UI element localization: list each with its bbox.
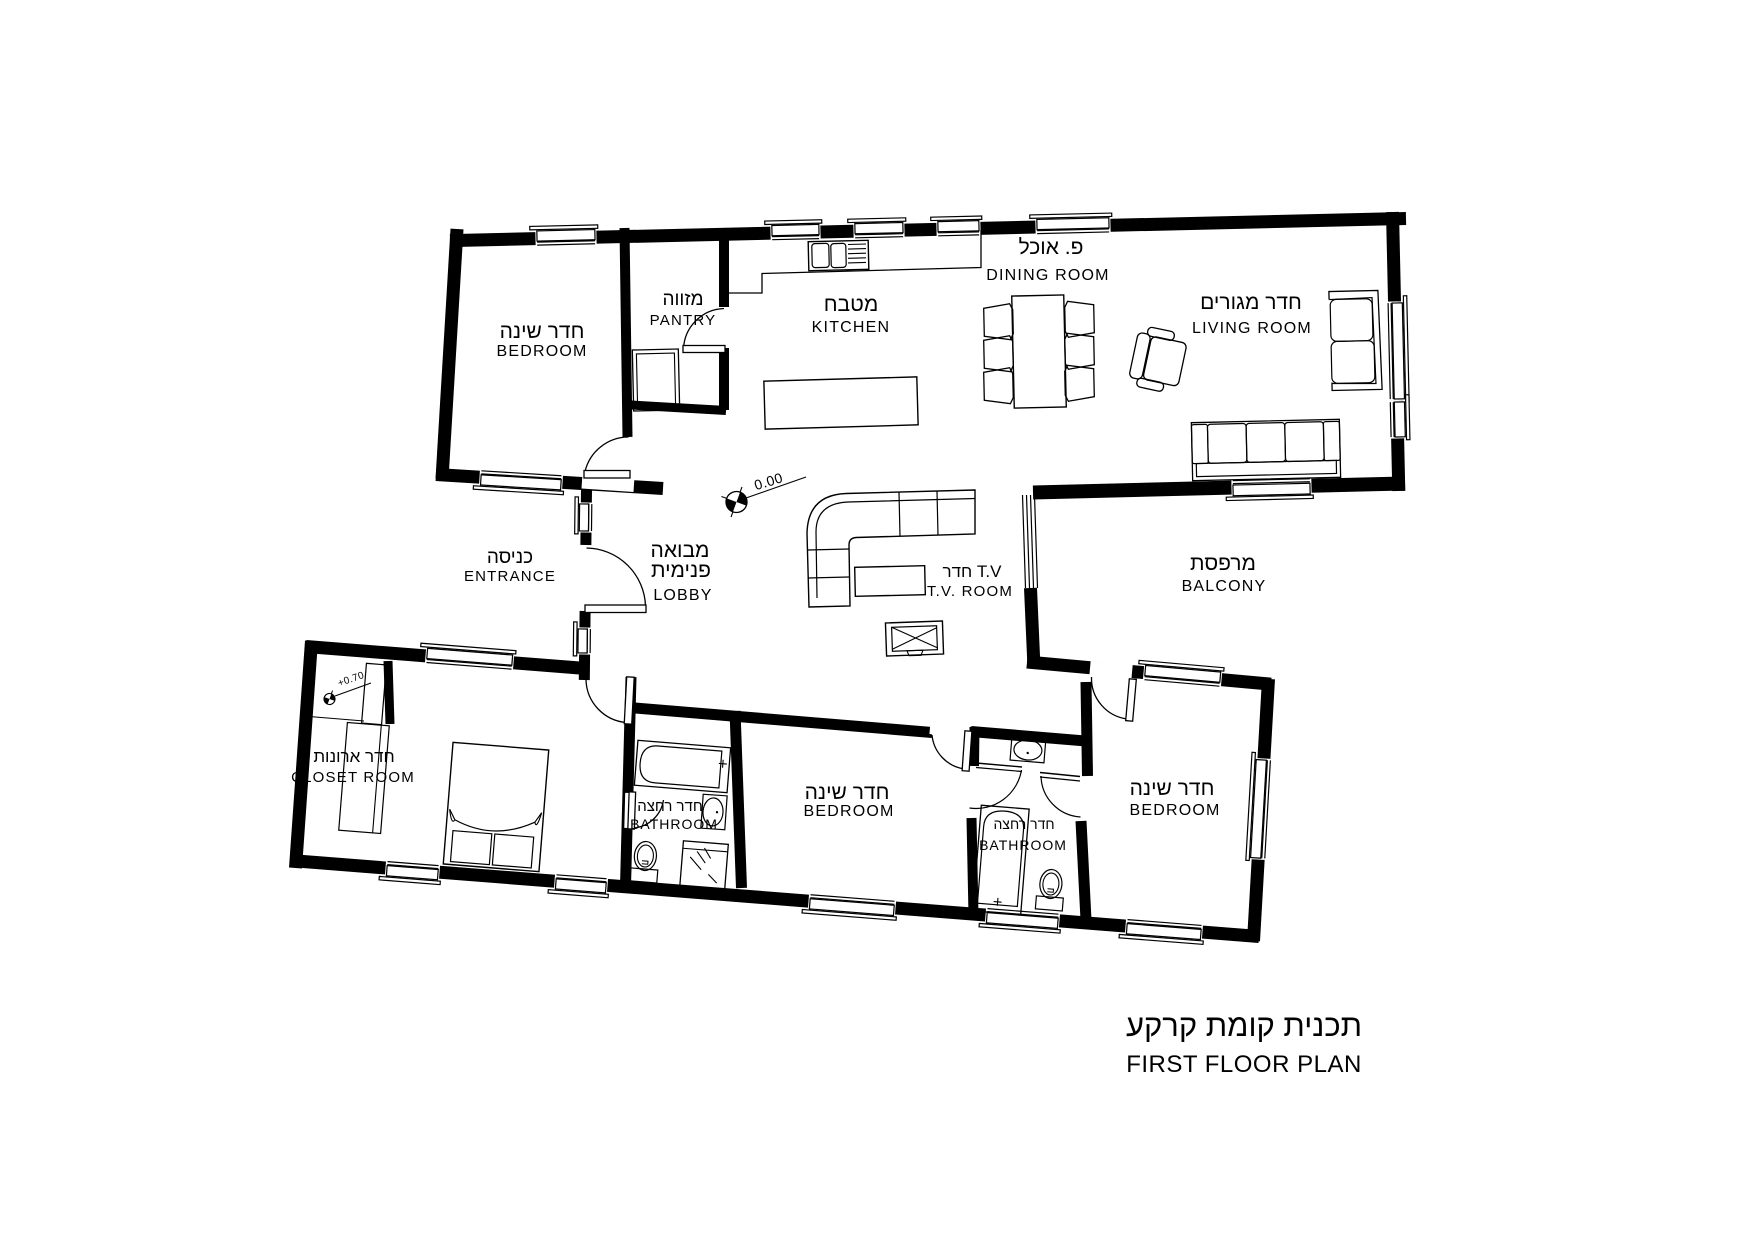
svg-text:תכנית קומת קרקע: תכנית קומת קרקע	[1126, 1008, 1362, 1043]
svg-text:LIVING ROOM: LIVING ROOM	[1192, 320, 1312, 337]
svg-text:BALCONY: BALCONY	[1182, 578, 1267, 595]
svg-text:BEDROOM: BEDROOM	[803, 803, 894, 820]
svg-text:T.V. ROOM: T.V. ROOM	[927, 583, 1013, 600]
svg-text:מזווה: מזווה	[662, 289, 703, 310]
svg-text:KITCHEN: KITCHEN	[812, 319, 891, 336]
svg-text:CLOSET ROOM: CLOSET ROOM	[291, 769, 415, 786]
svg-text:חדר T.V: חדר T.V	[943, 562, 1003, 581]
svg-text:BEDROOM: BEDROOM	[496, 343, 587, 360]
svg-text:BATHROOM: BATHROOM	[630, 816, 718, 832]
svg-text:פנימית: פנימית	[651, 559, 711, 582]
svg-text:חדר מגורים: חדר מגורים	[1200, 291, 1302, 314]
svg-text:חדר שינה: חדר שינה	[805, 781, 890, 804]
svg-text:חדר שינה: חדר שינה	[500, 320, 585, 343]
svg-text:פ. אוכל: פ. אוכל	[1019, 236, 1084, 259]
svg-text:מטבח: מטבח	[824, 293, 879, 316]
svg-text:FIRST FLOOR PLAN: FIRST FLOOR PLAN	[1126, 1051, 1362, 1078]
svg-text:חדר רחצה: חדר רחצה	[993, 816, 1054, 832]
svg-text:LOBBY: LOBBY	[653, 587, 712, 604]
svg-text:מרפסת: מרפסת	[1190, 552, 1256, 575]
svg-text:חדר ארונות: חדר ארונות	[313, 747, 394, 766]
svg-text:כניסה: כניסה	[487, 547, 533, 568]
svg-text:חדר שינה: חדר שינה	[1130, 777, 1215, 800]
svg-text:BEDROOM: BEDROOM	[1129, 802, 1220, 819]
svg-text:PANTRY: PANTRY	[650, 312, 717, 329]
svg-text:חדר רחצה: חדר רחצה	[637, 798, 703, 815]
svg-text:ENTRANCE: ENTRANCE	[464, 568, 556, 585]
svg-text:BATHROOM: BATHROOM	[979, 837, 1067, 853]
svg-text:DINING ROOM: DINING ROOM	[986, 267, 1109, 284]
